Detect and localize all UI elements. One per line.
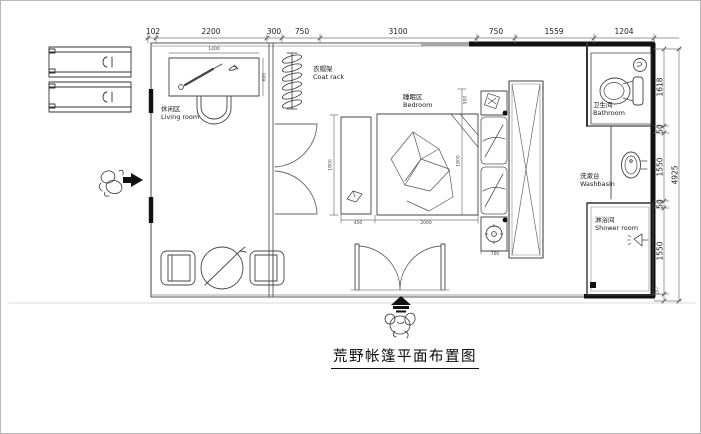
shower-head-icon: [627, 234, 648, 246]
north-indicator-icon: [385, 296, 417, 338]
dim-top-5: 750: [489, 27, 503, 36]
wardrobe: [509, 81, 543, 258]
round-table: [201, 247, 246, 289]
bed: [377, 114, 478, 215]
room-label-bedroom-en: Bedroom: [403, 101, 432, 109]
dim-top-2: 300: [267, 27, 281, 36]
living-room-furniture: [161, 58, 284, 289]
armchair-left: [161, 251, 195, 285]
dim-right-5: 107: [656, 287, 661, 296]
dim-desk-width: 1400: [208, 47, 219, 52]
room-label-bathroom-en: Bathroom: [593, 109, 625, 117]
dim-bed-width: 2000: [420, 221, 431, 226]
dim-top-1: 2200: [201, 27, 220, 36]
dim-right-1: 50: [656, 124, 665, 134]
nightstand-bottom: [481, 217, 507, 251]
room-label-living: 休闲区 Living room: [161, 105, 199, 122]
room-label-bathroom-zh: 卫生间: [593, 101, 625, 109]
room-label-washbasin: 洗漱台 Washbasin: [580, 172, 615, 189]
nightstand-top: [481, 91, 507, 115]
walls: [149, 42, 656, 299]
dim-right-overall: 4925: [671, 165, 680, 184]
dim-bed-length: 1800: [329, 159, 334, 170]
dim-bed-length-mid: 1800: [457, 155, 462, 166]
dim-top-7: 1204: [614, 27, 633, 36]
dim-right-0: 1618: [656, 77, 665, 96]
dim-desk-depth: 600: [263, 73, 268, 82]
doors: [275, 124, 449, 290]
dimension-lines: [146, 34, 681, 303]
dim-bench-width: 450: [354, 221, 363, 226]
cabinet-panels-icon: [49, 47, 131, 112]
bedroom-double-door: [275, 124, 317, 214]
main-entry-double-door: [351, 244, 449, 290]
room-label-shower: 淋浴间 Shower room: [595, 216, 638, 233]
room-label-living-zh: 休闲区: [161, 105, 199, 113]
dim-right-3: 50: [656, 199, 665, 209]
dim-top-6: 1559: [544, 27, 563, 36]
dim-top-0: 102: [146, 27, 160, 36]
room-label-coat-rack-en: Coat rack: [313, 73, 344, 81]
room-label-coat-rack-zh: 衣帽架: [313, 65, 344, 73]
drawing-title: 荒野帐篷平面布置图: [331, 345, 479, 369]
room-label-shower-en: Shower room: [595, 224, 638, 232]
floor-drain-icon: [590, 282, 596, 288]
room-label-bathroom: 卫生间 Bathroom: [593, 101, 625, 118]
exhaust-fan-icon: [634, 59, 647, 72]
room-label-coat-rack: 衣帽架 Coat rack: [313, 65, 344, 82]
blanket: [391, 114, 478, 211]
bench: [341, 117, 371, 214]
washbasin-counter: [611, 126, 647, 199]
dim-right-2: 1550: [656, 157, 665, 176]
dim-nightstand-depth: 500: [464, 96, 469, 105]
room-label-bedroom: 睡眠区 Bedroom: [403, 93, 432, 110]
room-label-bedroom-zh: 睡眠区: [403, 93, 432, 101]
dim-nightstand-width: 700: [491, 252, 500, 257]
coat-rack-icon: [282, 53, 303, 110]
armchair-right: [250, 251, 284, 285]
entrance-figure-icon: [99, 169, 143, 196]
bedroom-furniture: [341, 81, 543, 258]
room-label-living-en: Living room: [161, 113, 199, 121]
dim-top-3: 750: [295, 27, 309, 36]
room-label-washbasin-zh: 洗漱台: [580, 172, 615, 180]
desk: [169, 58, 259, 96]
room-label-shower-zh: 淋浴间: [595, 216, 638, 224]
dim-right-4: 1550: [656, 241, 665, 260]
floor-plan-sheet: 102 2200 300 750 3100 750 1559 1204 1618…: [0, 0, 701, 434]
desk-chair: [197, 96, 231, 124]
pillows: [481, 117, 507, 214]
dim-top-4: 3100: [388, 27, 407, 36]
room-label-washbasin-en: Washbasin: [580, 180, 615, 188]
